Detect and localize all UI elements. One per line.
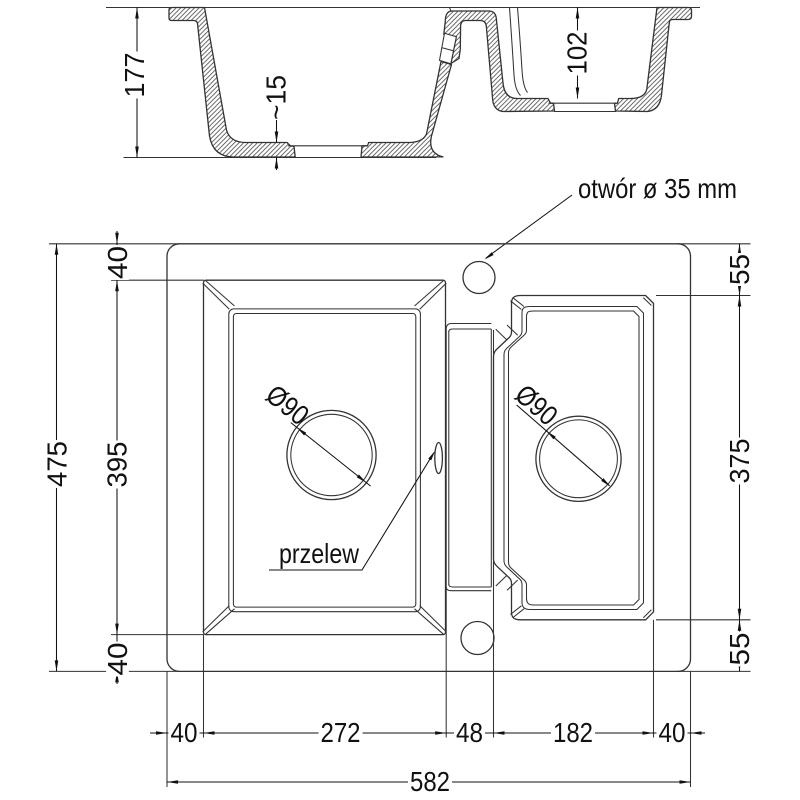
- svg-text:55: 55: [724, 633, 755, 666]
- svg-text:48: 48: [456, 717, 483, 748]
- svg-text:40: 40: [102, 643, 133, 676]
- svg-text:182: 182: [553, 717, 593, 748]
- svg-text:55: 55: [724, 254, 755, 285]
- svg-text:przelew: przelew: [279, 538, 360, 569]
- svg-text:375: 375: [724, 439, 755, 484]
- svg-text:40: 40: [171, 717, 198, 748]
- svg-text:395: 395: [102, 442, 133, 488]
- svg-text:582: 582: [410, 766, 450, 797]
- svg-text:272: 272: [321, 717, 361, 748]
- svg-text:102: 102: [562, 32, 593, 75]
- svg-text:~15: ~15: [261, 75, 292, 120]
- svg-text:otwór ø 35 mm: otwór ø 35 mm: [578, 173, 737, 204]
- svg-text:40: 40: [102, 246, 133, 279]
- svg-text:177: 177: [119, 53, 150, 98]
- svg-text:475: 475: [42, 441, 73, 487]
- svg-text:40: 40: [659, 717, 686, 748]
